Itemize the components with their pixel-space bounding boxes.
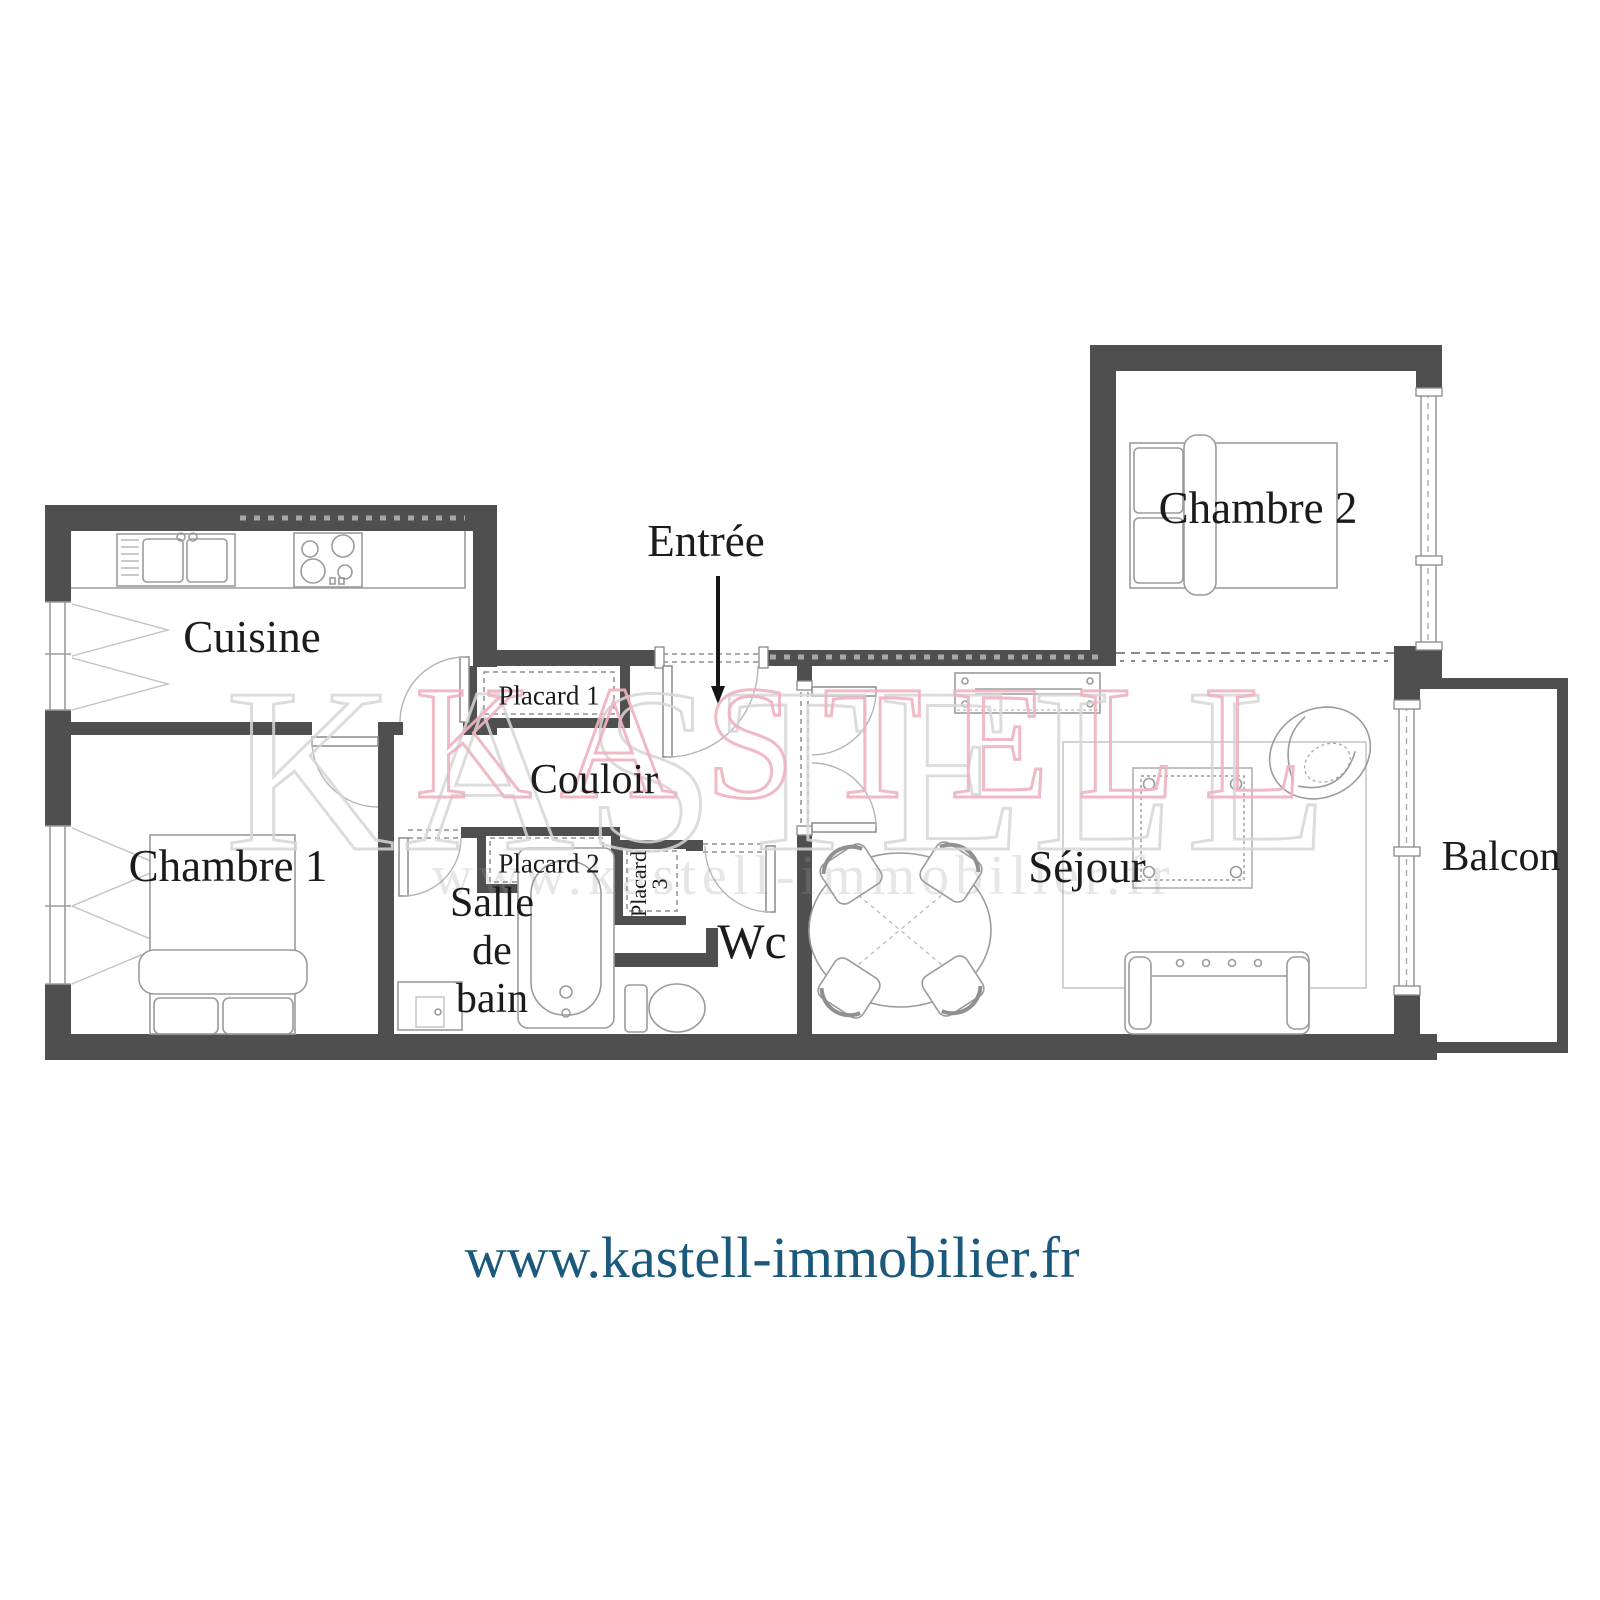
room-label-placard1: Placard 1 [498, 681, 599, 712]
room-label-chambre2: Chambre 2 [1159, 482, 1358, 534]
salle-line1: Salle [450, 880, 534, 928]
room-label-wc: Wc [717, 912, 786, 970]
placard3-line2: 3 [650, 851, 671, 917]
floor-plan-drawing [0, 0, 1600, 1600]
salle-line3: bain [450, 976, 534, 1024]
room-label-cuisine: Cuisine [183, 611, 321, 663]
room-label-entree: Entrée [647, 515, 764, 567]
floor-plan-page: KASTELL KASTELL www.kastell-immobilier.f… [0, 0, 1600, 1600]
site-url: www.kastell-immobilier.fr [465, 1224, 1080, 1291]
room-label-chambre1: Chambre 1 [129, 840, 328, 892]
room-label-balcon: Balcon [1442, 833, 1561, 881]
room-label-placard3: Placard 3 [629, 851, 671, 917]
room-label-salle-de-bain: Salle de bain [450, 880, 534, 1024]
room-label-sejour: Séjour [1028, 841, 1146, 893]
room-label-placard2: Placard 2 [498, 849, 599, 880]
room-label-couloir: Couloir [530, 756, 658, 804]
salle-line2: de [450, 928, 534, 976]
entrance-arrow [711, 576, 725, 704]
